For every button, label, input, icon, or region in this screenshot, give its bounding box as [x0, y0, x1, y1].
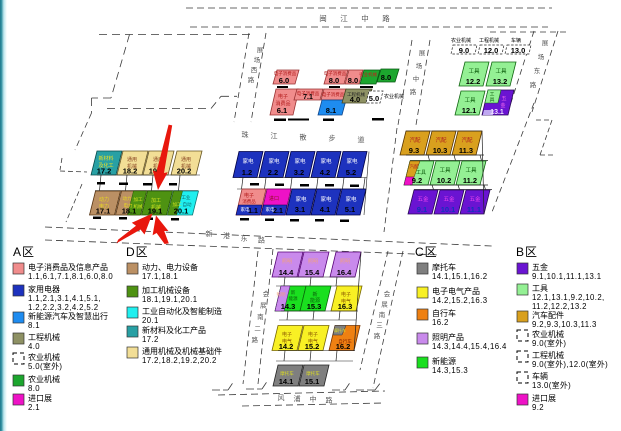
svg-text:8.1: 8.1 — [28, 321, 40, 330]
svg-text:12.1,13.1,9.2,10.2,: 12.1,13.1,9.2,10.2, — [532, 293, 605, 302]
svg-text:进口: 进口 — [269, 195, 279, 202]
svg-text:摩托车: 摩托车 — [306, 370, 320, 377]
svg-text:家用电器: 家用电器 — [28, 284, 60, 294]
svg-text:车辆: 车辆 — [532, 371, 548, 381]
svg-text:家电: 家电 — [320, 195, 332, 203]
svg-text:汽配: 汽配 — [409, 136, 421, 144]
svg-text:中: 中 — [361, 13, 369, 23]
svg-text:11.2: 11.2 — [463, 176, 477, 185]
svg-text:9.1: 9.1 — [417, 205, 427, 214]
svg-text:4.0: 4.0 — [350, 95, 360, 104]
svg-text:电子消费品: 电子消费品 — [322, 91, 345, 98]
svg-text:12.0: 12.0 — [484, 46, 499, 55]
svg-text:家电: 家电 — [268, 157, 280, 165]
svg-text:9.2: 9.2 — [532, 403, 544, 412]
svg-text:进口展: 进口展 — [28, 394, 52, 403]
svg-text:散: 散 — [300, 132, 307, 141]
svg-text:五金: 五金 — [443, 195, 455, 203]
svg-text:12.1: 12.1 — [462, 106, 477, 115]
svg-text:新能源: 新能源 — [432, 356, 456, 366]
svg-text:8.0: 8.0 — [381, 73, 391, 82]
svg-text:5.1: 5.1 — [345, 205, 355, 214]
svg-text:5.2: 5.2 — [346, 168, 356, 177]
svg-text:工具: 工具 — [532, 284, 548, 293]
svg-text:东: 东 — [241, 233, 248, 242]
svg-text:家电: 家电 — [294, 157, 306, 165]
svg-text:4.1: 4.1 — [320, 205, 330, 214]
svg-text:港: 港 — [223, 231, 230, 240]
svg-text:14.2,15.2,16.3: 14.2,15.2,16.3 — [432, 296, 487, 305]
svg-text:6.1: 6.1 — [277, 106, 287, 115]
svg-text:18.1: 18.1 — [122, 207, 137, 216]
svg-text:11.1: 11.1 — [467, 205, 481, 214]
svg-text:江: 江 — [271, 132, 278, 140]
svg-text:13.2: 13.2 — [493, 77, 508, 86]
svg-text:1.2: 1.2 — [242, 168, 252, 177]
svg-text:加工机械设备: 加工机械设备 — [142, 285, 190, 295]
svg-text:风: 风 — [278, 394, 285, 402]
svg-text:13.0(室外): 13.0(室外) — [532, 380, 571, 390]
svg-text:珠: 珠 — [242, 130, 249, 139]
svg-text:自行车: 自行车 — [432, 308, 456, 318]
svg-text:南: 南 — [379, 310, 386, 319]
svg-text:17.2: 17.2 — [97, 167, 112, 176]
svg-text:通用机械及机械基础件: 通用机械及机械基础件 — [142, 346, 222, 356]
svg-text:展: 展 — [260, 302, 267, 310]
svg-text:9.3: 9.3 — [409, 146, 419, 155]
svg-text:消费品: 消费品 — [242, 198, 256, 205]
svg-text:农业机械: 农业机械 — [359, 71, 377, 78]
svg-text:具: 具 — [490, 97, 495, 103]
svg-text:8.1: 8.1 — [326, 106, 336, 115]
svg-text:5.0: 5.0 — [369, 94, 379, 103]
svg-text:家电: 家电 — [242, 157, 254, 165]
svg-text:通用: 通用 — [181, 156, 191, 163]
svg-text:16.2: 16.2 — [336, 342, 351, 351]
svg-text:14.4: 14.4 — [279, 268, 294, 277]
svg-text:10.1: 10.1 — [441, 205, 456, 214]
svg-text:工程机械: 工程机械 — [479, 37, 499, 44]
svg-text:路: 路 — [382, 13, 390, 23]
svg-text:17.2: 17.2 — [142, 335, 159, 344]
svg-text:会: 会 — [263, 289, 270, 298]
svg-text:工具: 工具 — [468, 68, 480, 75]
svg-text:加工: 加工 — [151, 197, 161, 204]
svg-text:8.0: 8.0 — [329, 76, 339, 85]
svg-text:16.4: 16.4 — [337, 268, 352, 277]
svg-text:道: 道 — [358, 135, 365, 144]
svg-text:会: 会 — [384, 289, 391, 298]
svg-text:新材料: 新材料 — [98, 155, 113, 162]
svg-text:9.0(室外),12.0(室外): 9.0(室外),12.0(室外) — [532, 359, 608, 369]
svg-text:路: 路 — [248, 75, 255, 84]
svg-text:路: 路 — [374, 331, 381, 340]
svg-text:电子: 电子 — [341, 291, 351, 298]
svg-text:16.2: 16.2 — [432, 318, 449, 327]
svg-text:照明: 照明 — [340, 259, 350, 265]
svg-text:电子消费品及信息产品: 电子消费品及信息产品 — [28, 262, 108, 272]
svg-text:15.1: 15.1 — [305, 377, 320, 386]
svg-text:15.3: 15.3 — [307, 302, 322, 311]
svg-text:展: 展 — [419, 49, 426, 57]
svg-text:三: 三 — [376, 322, 383, 330]
svg-text:工具: 工具 — [439, 167, 451, 174]
svg-text:家电: 家电 — [345, 195, 357, 203]
svg-text:13.1: 13.1 — [490, 109, 504, 116]
svg-text:电子: 电子 — [244, 192, 254, 199]
svg-text:9.2: 9.2 — [412, 176, 422, 185]
svg-text:农业机械: 农业机械 — [451, 37, 471, 44]
svg-text:动力: 动力 — [123, 195, 132, 202]
svg-text:五金: 五金 — [532, 262, 548, 272]
svg-text:1.1: 1.1 — [248, 208, 258, 215]
svg-text:4.0: 4.0 — [28, 342, 40, 351]
svg-text:工具: 工具 — [465, 167, 477, 174]
svg-text:动力、电力设备: 动力、电力设备 — [142, 262, 198, 272]
svg-text:新材料及化工产品: 新材料及化工产品 — [142, 325, 206, 335]
svg-text:19.1: 19.1 — [148, 207, 163, 216]
svg-text:中: 中 — [310, 395, 317, 404]
svg-text:能源: 能源 — [289, 295, 298, 302]
svg-text:工程机械: 工程机械 — [28, 332, 60, 342]
svg-text:14.1,15.1,16.2: 14.1,15.1,16.2 — [432, 272, 487, 281]
svg-text:加工: 加工 — [134, 196, 143, 203]
svg-text:B区: B区 — [516, 245, 538, 259]
svg-text:中: 中 — [413, 74, 420, 83]
svg-text:新: 新 — [291, 289, 296, 296]
svg-text:14.1: 14.1 — [279, 377, 294, 386]
svg-text:9.0: 9.0 — [459, 46, 469, 55]
svg-text:10.3: 10.3 — [433, 146, 448, 155]
svg-text:9.1,10.1,11.1,13.1: 9.1,10.1,11.1,13.1 — [532, 272, 601, 281]
svg-text:路: 路 — [410, 87, 417, 96]
svg-text:五金: 五金 — [417, 195, 429, 203]
svg-text:14.3,14.4,15.4,16.4: 14.3,14.4,15.4,16.4 — [432, 342, 507, 351]
svg-text:家电: 家电 — [320, 157, 332, 165]
svg-text:1.1,2.1,3.1,4.1,5.1,: 1.1,2.1,3.1,4.1,5.1, — [28, 294, 101, 303]
svg-text:14.3: 14.3 — [281, 302, 296, 311]
svg-text:照明产品: 照明产品 — [432, 332, 464, 342]
svg-text:路: 路 — [252, 335, 259, 344]
svg-text:C区: C区 — [415, 245, 438, 259]
svg-text:五金: 五金 — [469, 195, 481, 203]
svg-text:路: 路 — [258, 236, 265, 245]
svg-text:13.0: 13.0 — [511, 46, 526, 55]
svg-text:路: 路 — [326, 395, 333, 404]
svg-text:3.2: 3.2 — [294, 168, 304, 177]
svg-text:家电: 家电 — [295, 195, 307, 203]
svg-text:新: 新 — [206, 229, 213, 238]
svg-text:A区: A区 — [13, 245, 35, 259]
svg-text:汽配: 汽配 — [410, 163, 419, 170]
svg-text:12.2: 12.2 — [466, 77, 481, 86]
svg-text:15.4: 15.4 — [305, 268, 320, 277]
svg-text:展: 展 — [381, 301, 388, 309]
svg-text:6.0: 6.0 — [279, 76, 289, 85]
svg-text:9.0(室外): 9.0(室外) — [532, 338, 566, 348]
svg-text:农业机械: 农业机械 — [384, 93, 404, 100]
svg-text:10.2: 10.2 — [437, 176, 452, 185]
svg-text:汽配: 汽配 — [435, 136, 447, 144]
svg-text:工业自动化及智能制造: 工业自动化及智能制造 — [142, 306, 222, 316]
svg-text:15.2: 15.2 — [305, 342, 320, 351]
svg-text:2.2: 2.2 — [268, 168, 278, 177]
svg-text:进口展: 进口展 — [532, 394, 556, 403]
svg-text:18.2: 18.2 — [123, 167, 138, 176]
svg-text:1.1,6.1,7.1,8.1,6.0,8.0: 1.1,6.1,7.1,8.1,6.0,8.0 — [28, 272, 113, 281]
svg-text:工具: 工具 — [495, 68, 507, 75]
svg-text:工具: 工具 — [464, 97, 476, 104]
svg-text:8.0: 8.0 — [28, 384, 40, 393]
svg-text:8.0: 8.0 — [348, 76, 358, 85]
svg-text:工程机械: 工程机械 — [532, 350, 564, 360]
svg-text:18.1,19.1,20.1: 18.1,19.1,20.1 — [142, 295, 197, 304]
svg-text:二: 二 — [254, 326, 261, 333]
svg-text:工业: 工业 — [182, 194, 191, 200]
svg-text:17.2,18.2,19.2,20.2: 17.2,18.2,19.2,20.2 — [142, 356, 217, 365]
svg-text:20.2: 20.2 — [177, 167, 192, 176]
svg-text:工: 工 — [490, 92, 495, 98]
svg-text:场: 场 — [538, 52, 545, 61]
svg-text:场: 场 — [416, 61, 423, 70]
svg-text:五: 五 — [501, 96, 506, 102]
svg-text:电子: 电子 — [282, 331, 292, 338]
svg-text:路: 路 — [530, 80, 537, 89]
svg-text:农业机械: 农业机械 — [532, 329, 564, 339]
svg-text:电子: 电子 — [308, 331, 318, 338]
svg-text:汽配: 汽配 — [461, 136, 473, 144]
svg-text:汽车配件: 汽车配件 — [532, 310, 564, 320]
svg-text:展: 展 — [257, 46, 264, 54]
svg-text:D区: D区 — [126, 245, 149, 259]
svg-text:4.2: 4.2 — [320, 168, 330, 177]
svg-text:2.1: 2.1 — [273, 208, 283, 215]
svg-text:东: 东 — [534, 66, 541, 75]
svg-text:展: 展 — [542, 39, 549, 47]
svg-text:家电: 家电 — [346, 157, 358, 165]
svg-text:通用: 通用 — [127, 156, 137, 163]
svg-text:17.1,18.1: 17.1,18.1 — [142, 272, 178, 281]
svg-text:9.2,9.3,10.3,11.3: 9.2,9.3,10.3,11.3 — [532, 320, 597, 329]
svg-text:11.3: 11.3 — [459, 146, 473, 155]
svg-text:11.2,12.2,13.2: 11.2,12.2,13.2 — [532, 302, 587, 311]
svg-text:新能源汽车及智慧出行: 新能源汽车及智慧出行 — [28, 311, 108, 321]
svg-text:1.2,2.2,3.2,4.2,5.2: 1.2,2.2,3.2,4.2,5.2 — [28, 303, 98, 312]
svg-text:照明: 照明 — [282, 259, 292, 265]
svg-text:摩托车: 摩托车 — [432, 262, 456, 272]
svg-text:16.3: 16.3 — [338, 302, 353, 311]
svg-text:14.3,15.3: 14.3,15.3 — [432, 366, 468, 375]
svg-text:电子: 电子 — [278, 93, 288, 100]
svg-text:照明: 照明 — [308, 259, 318, 265]
svg-text:20.1: 20.1 — [174, 207, 189, 216]
svg-text:14.2: 14.2 — [279, 342, 294, 351]
svg-text:摩托车: 摩托车 — [280, 370, 294, 377]
svg-text:电子电气产品: 电子电气产品 — [432, 286, 480, 296]
svg-text:闽: 闽 — [319, 14, 327, 23]
svg-text:农业机械: 农业机械 — [28, 352, 60, 362]
svg-text:动力: 动力 — [99, 196, 109, 203]
svg-text:西: 西 — [251, 66, 258, 74]
svg-text:浦: 浦 — [294, 394, 301, 403]
svg-text:5.0(室外): 5.0(室外) — [28, 361, 62, 371]
svg-text:南: 南 — [257, 312, 264, 321]
svg-text:车辆: 车辆 — [511, 37, 521, 44]
svg-text:2.1: 2.1 — [28, 403, 40, 412]
svg-text:步: 步 — [329, 135, 336, 143]
svg-text:农业机械: 农业机械 — [28, 374, 60, 384]
svg-text:20.1: 20.1 — [142, 316, 159, 325]
svg-text:金: 金 — [500, 102, 505, 109]
svg-text:3.1: 3.1 — [295, 205, 305, 214]
svg-text:江: 江 — [340, 14, 348, 23]
svg-text:17.1: 17.1 — [96, 207, 111, 216]
svg-text:新: 新 — [312, 291, 317, 298]
svg-text:7.1: 7.1 — [303, 94, 313, 101]
svg-text:场: 场 — [254, 55, 261, 64]
svg-text:摩托车: 摩托车 — [334, 327, 346, 333]
